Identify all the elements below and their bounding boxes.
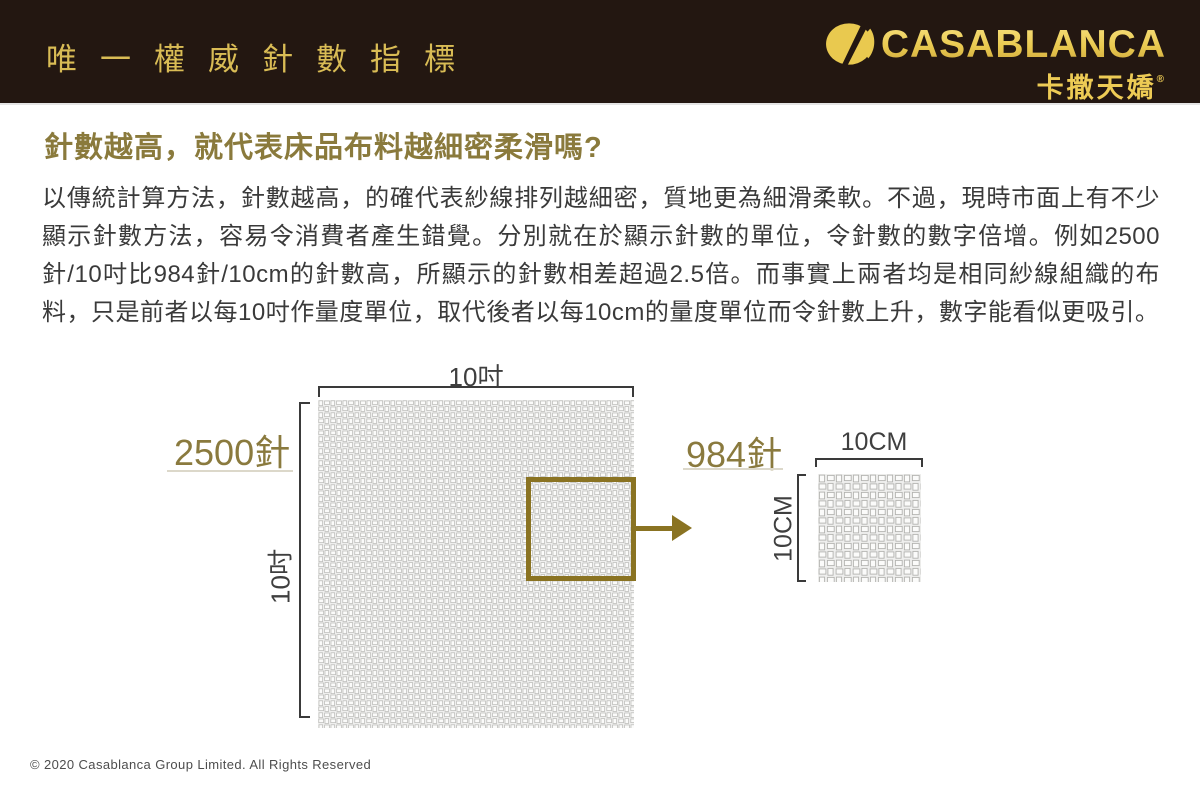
body-paragraph: 以傳統計算方法，針數越高，的確代表紗線排列越細密，質地更為細滑柔軟。不過，現時市… bbox=[42, 180, 1160, 332]
page-title: 唯一權威針數指標 bbox=[46, 34, 478, 79]
brand-chinese-name: 卡撒天嬌® bbox=[825, 74, 1164, 104]
large-swatch-height-label: 10吋 bbox=[261, 545, 298, 609]
casablanca-logo-icon bbox=[825, 20, 877, 73]
dimension-bracket-left-small bbox=[797, 474, 806, 582]
large-swatch-width-label: 10吋 bbox=[430, 357, 522, 394]
stitch-count-underline-large bbox=[167, 470, 293, 472]
magnify-arrow-icon bbox=[672, 515, 692, 541]
magnify-arrow-line bbox=[636, 526, 674, 531]
stitch-count-underline-small bbox=[683, 468, 783, 470]
brand-logo: CASABLANCA 卡撒天嬌® bbox=[825, 16, 1166, 104]
header-bar: 唯一權威針數指標 CASABLANCA 卡撒天嬌® bbox=[0, 0, 1200, 105]
large-swatch-stitch-count: 2500針 bbox=[174, 424, 290, 476]
small-swatch-stitch-count: 984針 bbox=[686, 426, 782, 478]
fabric-texture-large bbox=[318, 400, 634, 728]
slide-page: 唯一權威針數指標 CASABLANCA 卡撒天嬌® 針數越高，就代表床品布料越細… bbox=[0, 0, 1200, 800]
section-heading: 針數越高，就代表床品布料越細密柔滑嗎? bbox=[44, 124, 603, 166]
dimension-bracket-left-large bbox=[299, 402, 310, 718]
registered-mark: ® bbox=[1157, 74, 1164, 85]
small-swatch-width-label: 10CM bbox=[834, 428, 914, 457]
dimension-bracket-top-small bbox=[815, 458, 923, 467]
stitch-comparison-diagram: 10吋 10吋 2500針 984針 10CM bbox=[0, 0, 1200, 800]
dimension-bracket-top-large bbox=[318, 386, 634, 397]
small-swatch-height-label: 10CM bbox=[770, 489, 799, 569]
copyright-notice: © 2020 Casablanca Group Limited. All Rig… bbox=[30, 757, 371, 772]
highlight-square bbox=[526, 477, 636, 581]
fabric-texture-small bbox=[818, 474, 921, 582]
brand-name: CASABLANCA bbox=[881, 25, 1166, 64]
